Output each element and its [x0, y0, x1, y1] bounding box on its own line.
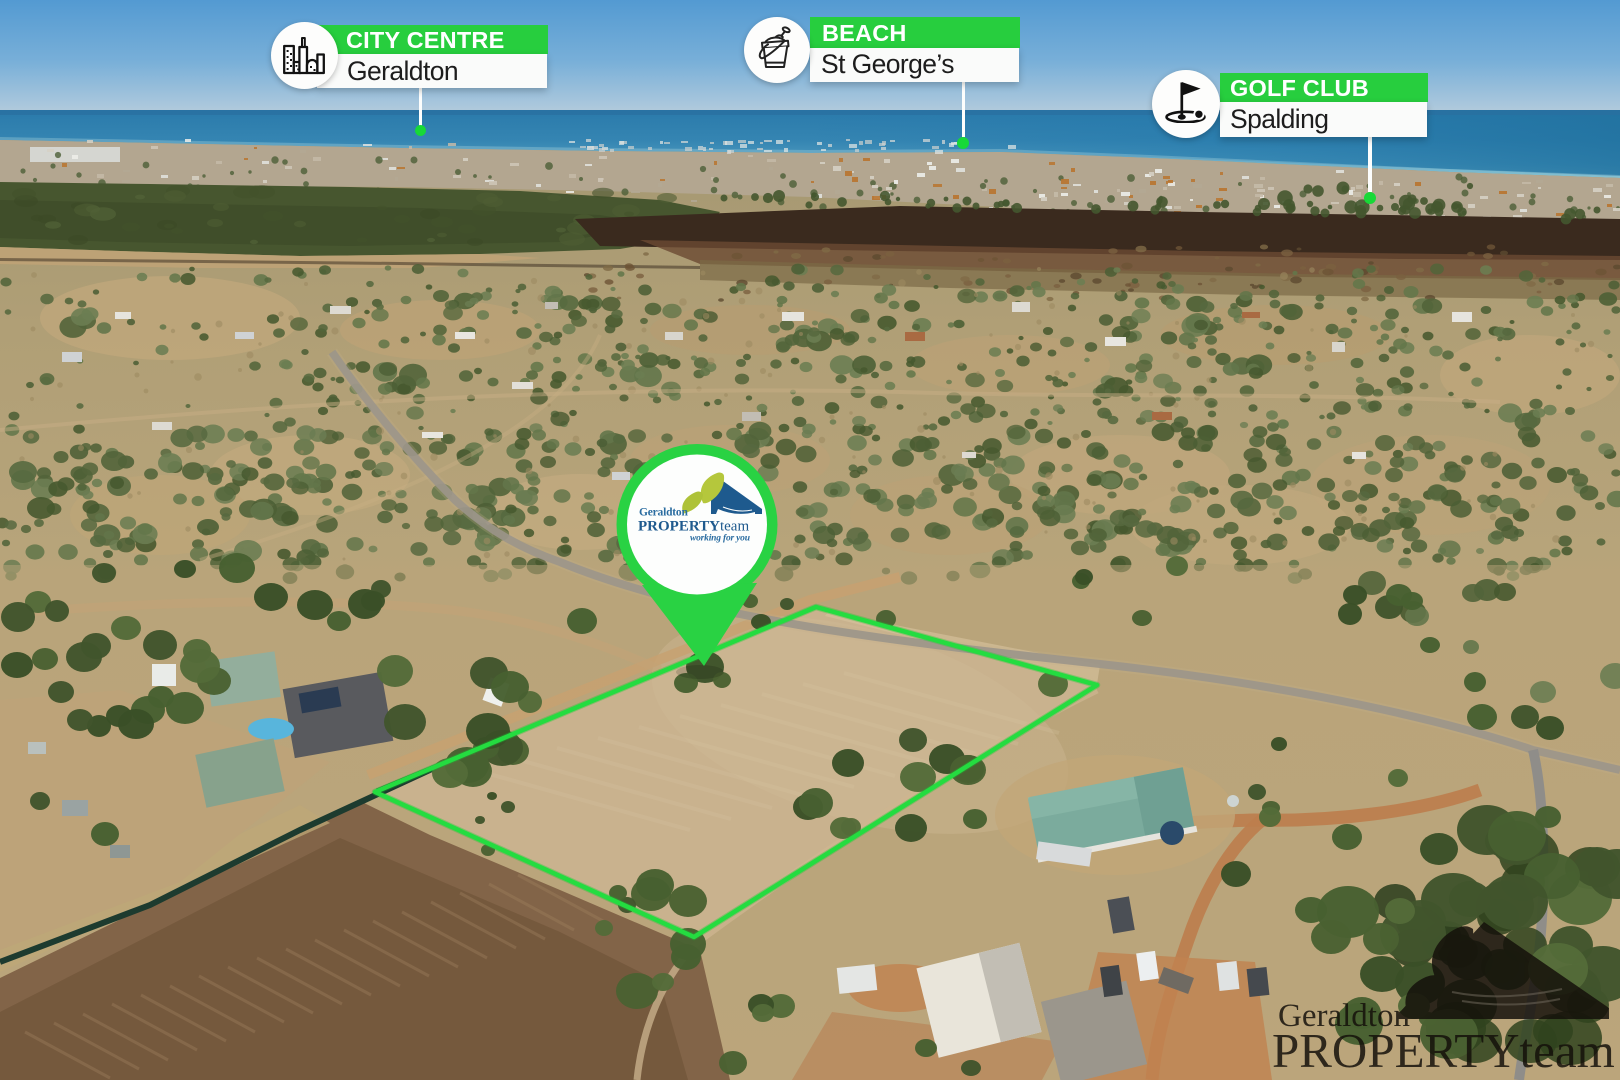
svg-text:Geraldton: Geraldton: [639, 507, 688, 519]
svg-text:working for you: working for you: [690, 534, 750, 544]
svg-text:PROPERTYteam: PROPERTYteam: [638, 519, 749, 535]
svg-text:PROPERTYteam: PROPERTYteam: [1272, 1023, 1615, 1078]
